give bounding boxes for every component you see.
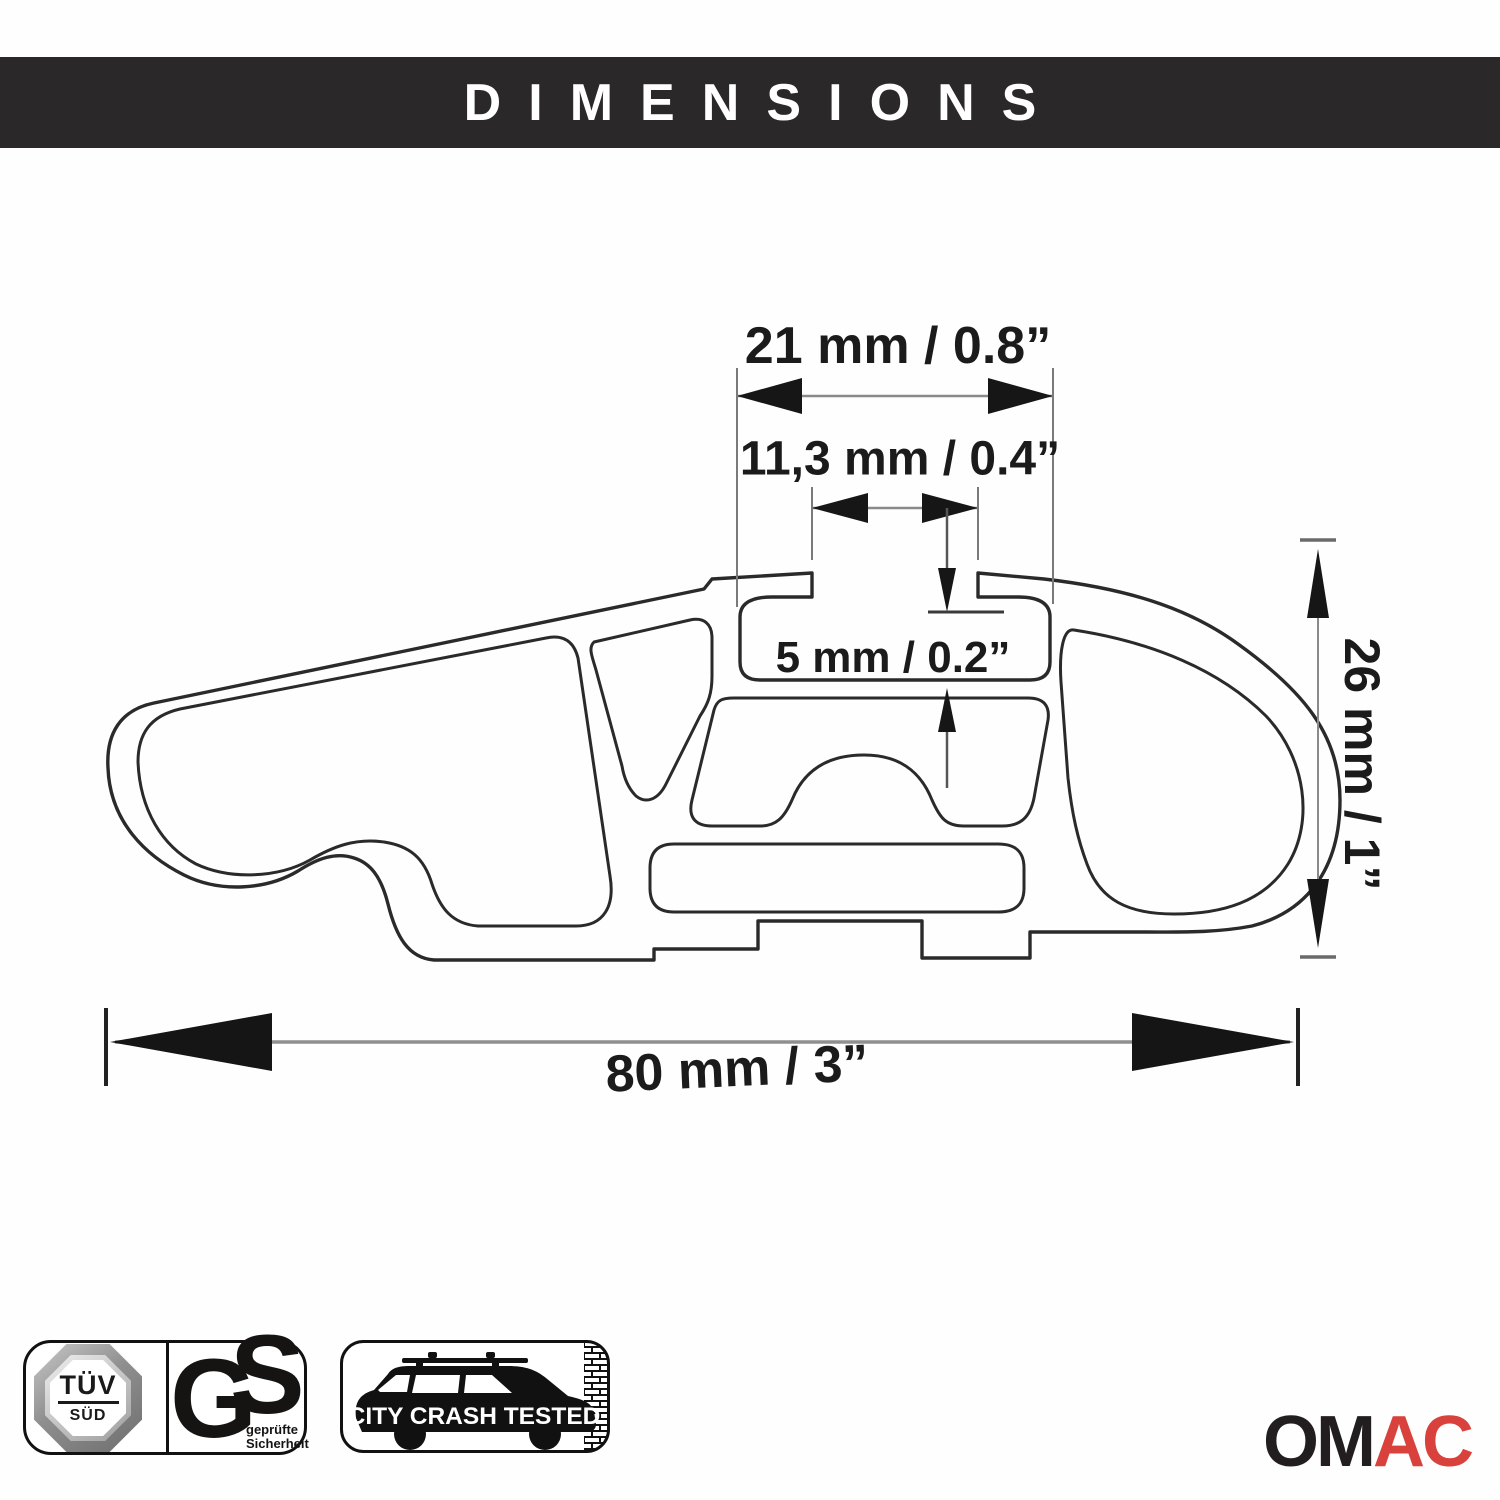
arrow-left-icon — [737, 378, 802, 414]
arrow-down-icon — [938, 568, 956, 612]
profile-bottom-chamber — [650, 844, 1024, 912]
profile-mid-chamber — [591, 619, 712, 800]
arrow-up-icon — [1307, 549, 1329, 618]
profile-outer-contour — [108, 573, 1340, 960]
arrow-left-icon — [110, 1013, 272, 1071]
tuv-octagon-ring: TÜV SÜD — [45, 1355, 131, 1441]
gs-letter-s: S — [230, 1319, 305, 1431]
omac-logo-om: OM — [1263, 1406, 1373, 1478]
dimension-11-3mm — [812, 487, 978, 560]
arrow-down-icon — [1307, 879, 1329, 948]
gs-mark: G S geprüfte Sicherheit — [166, 1343, 307, 1452]
sud-text: SÜD — [70, 1407, 107, 1425]
arrow-up-icon — [938, 688, 956, 732]
car-windows — [378, 1375, 512, 1393]
profile-central-cavity — [691, 698, 1049, 826]
profile-right-chamber — [1061, 630, 1304, 914]
omac-logo: OMAC — [1231, 1408, 1471, 1476]
arrow-right-icon — [1132, 1013, 1294, 1071]
tuv-text: TÜV — [58, 1372, 119, 1404]
page: DIMENSIONS — [0, 0, 1500, 1500]
dimension-label-channel-width: 21 mm / 0.8” — [745, 316, 1051, 376]
gs-caption-line1: geprüfte — [246, 1423, 309, 1437]
arrow-right-icon — [988, 378, 1053, 414]
dimension-label-channel-depth: 5 mm / 0.2” — [776, 633, 1011, 683]
dimension-label-profile-height: 26 mm / 1” — [1333, 638, 1391, 891]
dimension-label-slot-opening: 11,3 mm / 0.4” — [740, 432, 1060, 487]
city-crash-tested-badge: CITY CRASH TESTED — [340, 1340, 610, 1453]
profile-drawing — [0, 0, 1500, 1500]
omac-logo-ac: AC — [1373, 1406, 1471, 1478]
crash-badge-label: CITY CRASH TESTED — [348, 1403, 601, 1430]
gs-caption-line2: Sicherheit — [246, 1437, 309, 1451]
arrow-right-icon — [922, 493, 978, 523]
dimension-21mm — [737, 368, 1053, 607]
crash-badge-graphic: CITY CRASH TESTED — [340, 1340, 610, 1453]
tuv-gs-badge: TÜV SÜD G S geprüfte Sicherheit — [23, 1340, 307, 1455]
gs-caption: geprüfte Sicherheit — [246, 1423, 309, 1452]
arrow-left-icon — [812, 493, 868, 523]
tuv-octagon-icon: TÜV SÜD — [34, 1344, 142, 1452]
tuv-octagon-center: TÜV SÜD — [50, 1360, 126, 1436]
dimension-label-profile-width: 80 mm / 3” — [604, 1033, 869, 1104]
